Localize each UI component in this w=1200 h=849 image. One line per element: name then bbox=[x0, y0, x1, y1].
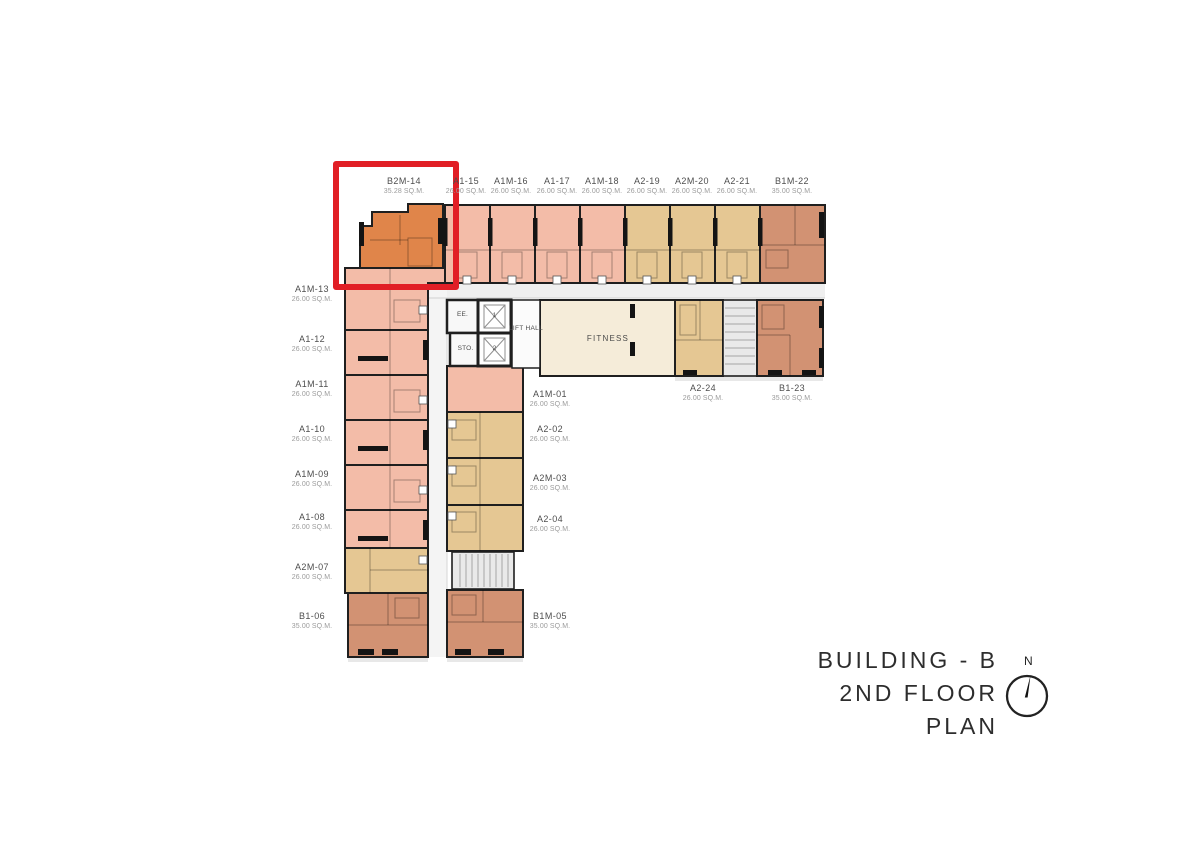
unit-label-b1m-22: B1M-22 35.00 SQ.M. bbox=[760, 176, 824, 196]
unit-label-b1-23: B1-23 35.00 SQ.M. bbox=[754, 383, 830, 403]
unit-label-a1-10: A1-10 26.00 SQ.M. bbox=[280, 424, 344, 444]
floor-title: 2ND FLOOR PLAN bbox=[758, 677, 998, 743]
unit-label-b1-06: B1-06 35.00 SQ.M. bbox=[280, 611, 344, 631]
building-title: BUILDING - B bbox=[758, 644, 998, 677]
unit-shape-a1-17[interactable] bbox=[535, 205, 580, 283]
unit-label-a1m-01: A1M-01 26.00 SQ.M. bbox=[512, 389, 588, 409]
unit-label-a2-24: A2-24 26.00 SQ.M. bbox=[665, 383, 741, 403]
compass-needle bbox=[1025, 675, 1031, 698]
unit-label-a2-04: A2-04 26.00 SQ.M. bbox=[512, 514, 588, 534]
lift-1-label: 1 bbox=[478, 312, 511, 319]
unit-shape-a2m-20[interactable] bbox=[670, 205, 715, 283]
north-label: N bbox=[1024, 654, 1033, 668]
fitness-room-label: FITNESS bbox=[565, 334, 651, 343]
unit-shape-a1-12[interactable] bbox=[345, 330, 428, 375]
unit-label-a1-12: A1-12 26.00 SQ.M. bbox=[280, 334, 344, 354]
unit-shape-b1m-22[interactable] bbox=[760, 205, 825, 283]
unit-shape-a1-08[interactable] bbox=[345, 510, 428, 548]
unit-label-a2m-07: A2M-07 26.00 SQ.M. bbox=[280, 562, 344, 582]
unit-shape-a1m-18[interactable] bbox=[580, 205, 625, 283]
unit-shape-a2-19[interactable] bbox=[625, 205, 670, 283]
unit-label-a1m-13: A1M-13 26.00 SQ.M. bbox=[280, 284, 344, 304]
unit-shape-a1m-16[interactable] bbox=[490, 205, 535, 283]
unit-label-a2m-03: A2M-03 26.00 SQ.M. bbox=[512, 473, 588, 493]
lift-hall-shape bbox=[512, 300, 540, 368]
unit-label-a2-02: A2-02 26.00 SQ.M. bbox=[512, 424, 588, 444]
unit-label-a1-08: A1-08 26.00 SQ.M. bbox=[280, 512, 344, 532]
electrical-room-label: EE. bbox=[447, 311, 478, 318]
storage-room-label: STO. bbox=[450, 345, 481, 352]
unit-shape-a2-24[interactable] bbox=[675, 300, 723, 376]
unit-shape-a1m-09[interactable] bbox=[345, 465, 428, 510]
title-block: BUILDING - B 2ND FLOOR PLAN bbox=[758, 644, 998, 743]
floor-plan-page: B2M-14 35.28 SQ.M. A1-15 26.00 SQ.M. A1M… bbox=[0, 0, 1200, 849]
unit-shape-a2-21[interactable] bbox=[715, 205, 760, 283]
unit-shape-a1-10[interactable] bbox=[345, 420, 428, 465]
unit-label-b1m-05: B1M-05 35.00 SQ.M. bbox=[512, 611, 588, 631]
unit-label-b2m-14: B2M-14 35.28 SQ.M. bbox=[372, 176, 436, 196]
unit-label-a1m-09: A1M-09 26.00 SQ.M. bbox=[280, 469, 344, 489]
lift-2-label: 2 bbox=[478, 345, 511, 352]
stairwell-middle bbox=[452, 552, 514, 589]
stairwell-right bbox=[723, 300, 757, 376]
lift-hall-label: LIFT HALL bbox=[508, 324, 544, 333]
unit-label-a1m-11: A1M-11 26.00 SQ.M. bbox=[280, 379, 344, 399]
compass-circle bbox=[1003, 668, 1053, 722]
north-compass-icon: N bbox=[1003, 654, 1053, 724]
unit-shape-a1m-11[interactable] bbox=[345, 375, 428, 420]
